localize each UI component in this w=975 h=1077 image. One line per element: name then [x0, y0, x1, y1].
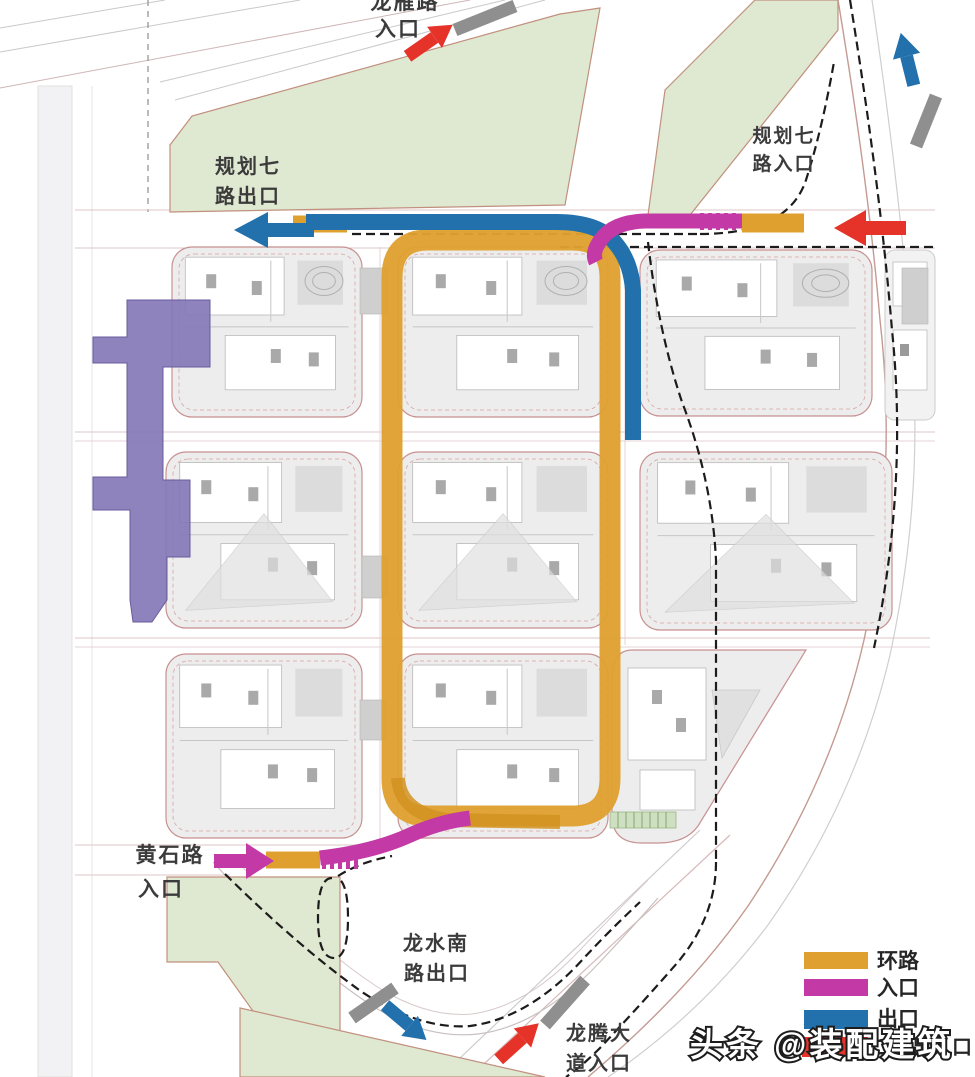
green-northeast	[648, 0, 838, 215]
plan-canvas: 龙雁路 入口 规划七 路出口 规划七 路入口 黄石路 入口 龙水南 路出口 龙腾…	[0, 0, 975, 1077]
legend-swatch-ring	[804, 952, 868, 969]
label-longshui-exit: 路出口	[404, 961, 470, 985]
green-hatch-strip	[610, 812, 676, 828]
label-longshui-road: 龙水南	[403, 931, 469, 955]
city-block	[398, 247, 608, 417]
label-top-entrance: 入口	[375, 17, 421, 41]
label-northeast-entrance: 路入口	[752, 152, 815, 175]
label-huangshi-entrance: 入口	[138, 877, 184, 901]
label-top-entrance-road: 龙雁路	[371, 0, 440, 14]
exit-arrow-northeast	[887, 30, 927, 89]
watermark: 头条 @装配建筑	[690, 1026, 953, 1063]
city-block	[640, 452, 892, 630]
label-huangshi-road: 黄石路	[136, 843, 205, 867]
label-northwest-exit-road: 规划七	[215, 155, 281, 178]
label-northeast-entrance-road: 规划七	[752, 124, 815, 147]
site-circulation-plan: 龙雁路 入口 规划七 路出口 规划七 路入口 黄石路 入口 龙水南 路出口 龙腾…	[0, 0, 975, 1077]
city-block	[398, 452, 608, 628]
label-longteng-road: 龙腾大	[566, 1021, 632, 1045]
label-longteng-entrance: 道入口	[566, 1051, 632, 1075]
city-block	[166, 654, 362, 838]
legend-label-entrance: 入口	[877, 977, 919, 1000]
city-blocks	[166, 247, 892, 838]
phase2-arrow-east	[834, 210, 906, 246]
legend-swatch-entrance	[804, 979, 868, 996]
city-block	[640, 250, 872, 416]
label-northwest-exit: 路出口	[215, 184, 281, 208]
city-block	[166, 452, 362, 628]
legend-label-ring: 环路	[877, 949, 920, 973]
